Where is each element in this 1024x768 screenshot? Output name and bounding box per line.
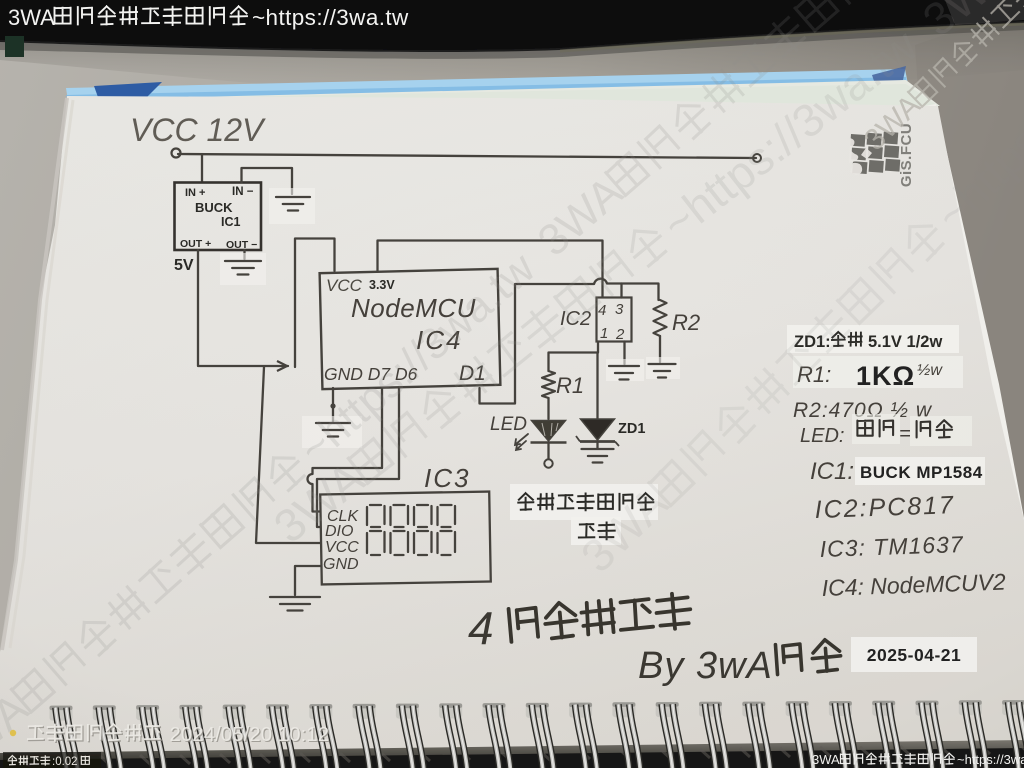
svg-text:GND: GND: [323, 556, 359, 573]
svg-text:3WA: 3WA: [812, 752, 840, 767]
svg-text::0.02: :0.02: [52, 756, 78, 768]
svg-text:IC1: IC1: [221, 215, 241, 229]
svg-text:IC1:: IC1:: [810, 458, 854, 485]
svg-text:3WA: 3WA: [8, 5, 55, 30]
svg-text:VCC: VCC: [325, 539, 359, 556]
svg-text:R1: R1: [556, 373, 584, 398]
svg-text:3.3V: 3.3V: [369, 278, 395, 292]
svg-text:½w: ½w: [917, 362, 943, 379]
svg-text:IC3: IC3: [424, 463, 470, 493]
svg-text:IN −: IN −: [232, 186, 254, 198]
svg-text:5V: 5V: [174, 257, 194, 274]
svg-text:BUCK: BUCK: [195, 200, 233, 215]
svg-text:=: =: [899, 423, 911, 445]
svg-text:1: 1: [600, 325, 608, 342]
svg-text:2025-04-21: 2025-04-21: [867, 645, 962, 665]
svg-text:BUCK MP1584: BUCK MP1584: [860, 463, 983, 482]
svg-text:LED:: LED:: [800, 425, 844, 447]
svg-text:OUT −: OUT −: [226, 239, 257, 251]
svg-text:2: 2: [615, 326, 625, 343]
svg-text:1KΩ: 1KΩ: [856, 361, 915, 391]
svg-text:3: 3: [615, 301, 624, 318]
svg-text:IN +: IN +: [185, 187, 205, 199]
svg-text:IC2:PC817: IC2:PC817: [814, 491, 955, 524]
svg-text:IC3: TM1637: IC3: TM1637: [819, 531, 964, 562]
svg-text:2024/05/20 10:12: 2024/05/20 10:12: [170, 723, 330, 746]
svg-text:VCC 12V: VCC 12V: [130, 112, 266, 148]
svg-text:By 3wA: By 3wA: [638, 645, 773, 687]
svg-text:OUT +: OUT +: [180, 238, 211, 250]
svg-text:4: 4: [598, 302, 606, 319]
svg-text:~https://3wa.tw: ~https://3wa.tw: [957, 752, 1024, 767]
svg-text:LED: LED: [490, 414, 527, 435]
svg-text:~https://3wa.tw: ~https://3wa.tw: [252, 5, 409, 30]
svg-text:4: 4: [468, 602, 494, 654]
svg-text:ZD1: ZD1: [618, 421, 645, 437]
svg-text:5.1V 1/2w: 5.1V 1/2w: [868, 333, 942, 351]
svg-text:R2: R2: [672, 310, 700, 335]
